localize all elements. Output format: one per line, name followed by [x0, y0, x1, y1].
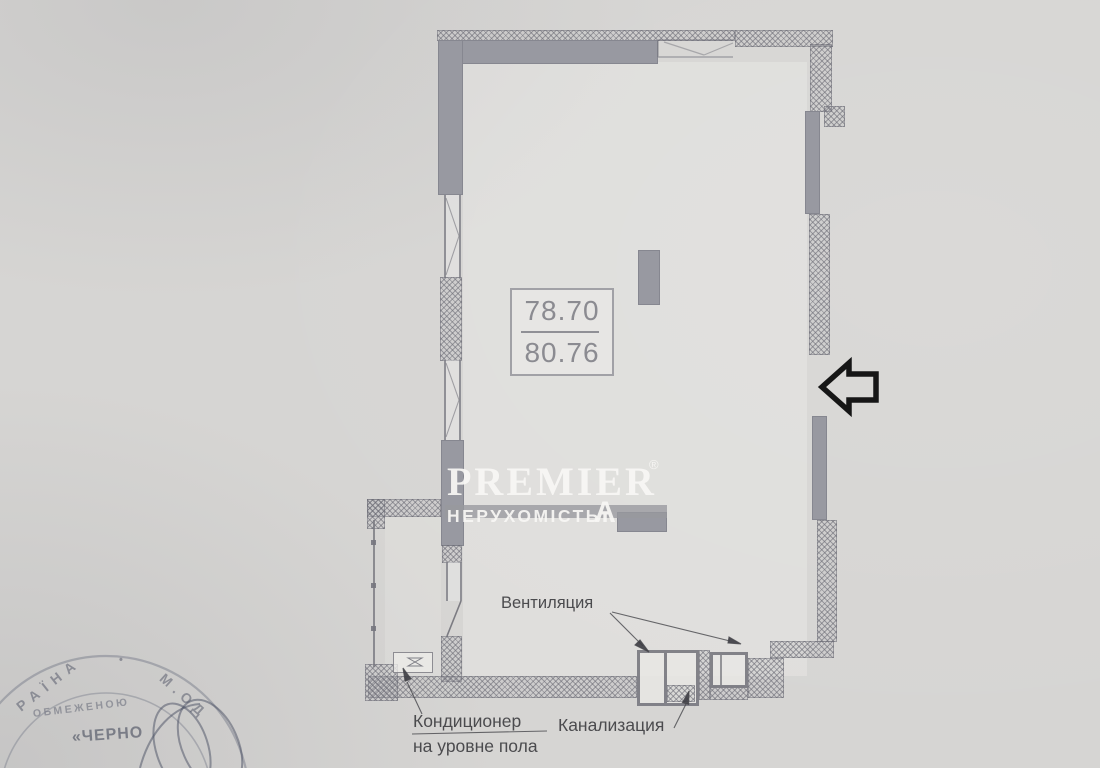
stamp-company-text: «ЧЕРНО [71, 724, 144, 747]
vent2-under-hatch [710, 686, 748, 700]
air-conditioner-label-line2: на уровне пола [413, 736, 538, 757]
area-value-box: 78.70 80.76 [510, 288, 614, 376]
vent1-hatch-patch [667, 685, 695, 702]
wall-bottom-hatch [368, 676, 637, 698]
balcony-door-swing [447, 601, 461, 636]
scanned-floor-plan-photo: { "plan": { "area_box": { "upper": "78.7… [0, 0, 1100, 768]
wall-right-solid-lower [812, 416, 827, 520]
interior-column [638, 250, 660, 305]
sewerage-leader [674, 704, 686, 728]
stamp-arc-text-right: М.ОД [157, 670, 212, 722]
wall-left-pillar-hatch [440, 277, 462, 361]
wall-right-solid-upper [805, 111, 820, 214]
window-left-lower [444, 360, 461, 440]
ventilation-label: Вентиляция [501, 594, 593, 613]
air-conditioner-label-line1: Кондиционер [413, 711, 521, 732]
interior-wall-stub [617, 512, 667, 532]
top-window-lines [658, 40, 733, 57]
wall-right-hatch-mid [809, 214, 830, 355]
wall-step-block-hatch [748, 658, 784, 698]
balcony-top-corner-hatch [367, 499, 385, 529]
ventilation-shaft-1 [637, 650, 699, 706]
wall-top-solid [438, 40, 658, 64]
wall-right-hatch-lower [817, 520, 837, 642]
ventilation-shaft-2 [710, 652, 748, 688]
wall-left-solid-mid [441, 440, 464, 546]
wall-right-hatch-top [810, 44, 832, 112]
window-left-upper [444, 195, 461, 278]
vent2-divider [720, 655, 722, 685]
wall-right-protrusion [824, 106, 845, 127]
sewerage-label: Канализация [558, 715, 664, 736]
wall-step-top-hatch [770, 641, 834, 658]
stamp-inner-arc-text: ОБМЕЖЕНОЮ [32, 696, 130, 720]
area-lower-value: 80.76 [512, 332, 612, 374]
balcony-door-window [446, 562, 462, 601]
railing-post [371, 583, 376, 588]
stamp-separator-dot: • [119, 654, 123, 666]
wall-left-solid-upper [438, 40, 463, 195]
entrance-arrow-icon [822, 363, 876, 411]
air-conditioner-box [393, 652, 433, 673]
railing-post [371, 540, 376, 545]
railing-post [371, 626, 376, 631]
wall-balcony-door-jamb-top [442, 545, 462, 563]
vent-divider-hatch [699, 650, 710, 700]
area-upper-value: 78.70 [512, 290, 612, 332]
